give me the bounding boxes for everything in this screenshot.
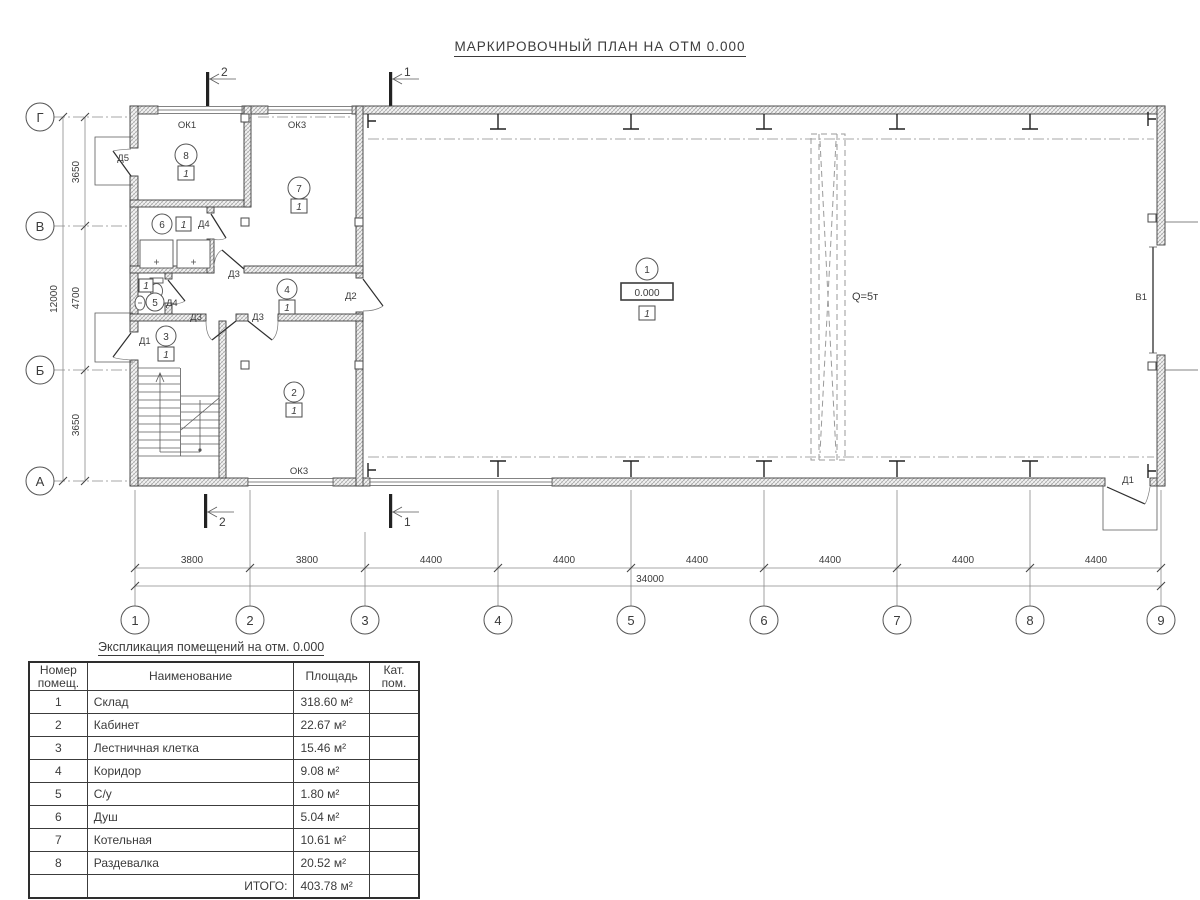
table-header-row: Номер помещ. Наименование Площадь Кат. п…	[29, 662, 419, 691]
axis-grid: 3650 4700 3650 12000 Г В Б А	[26, 103, 1175, 634]
doors: Д5 Д1 Д4 Д4 Д3 Д3 Д3	[113, 149, 1150, 504]
dim-left-1: 4700	[71, 286, 82, 309]
explication-table: Номер помещ. Наименование Площадь Кат. п…	[28, 661, 420, 899]
header-cat: Кат. пом.	[369, 662, 419, 691]
sink-icon	[135, 296, 145, 310]
section-top-1: 1	[404, 65, 411, 79]
section-marks: 2 1 2 1	[204, 65, 419, 529]
staircase	[138, 368, 219, 456]
door-label-d3-b: Д3	[190, 312, 202, 323]
axis-col-7: 7	[893, 613, 900, 628]
svg-text:5: 5	[152, 298, 158, 309]
svg-text:1: 1	[143, 281, 149, 292]
header-name: Наименование	[87, 662, 294, 691]
floor-plan-svg: 3650 4700 3650 12000 Г В Б А	[0, 0, 1200, 640]
svg-text:8: 8	[183, 151, 189, 162]
dim-bottom-3: 4400	[553, 555, 576, 566]
axis-col-9: 9	[1157, 613, 1164, 628]
svg-text:1: 1	[291, 406, 297, 417]
gate-v1	[1149, 245, 1165, 355]
door-label-d3-c: Д3	[252, 312, 264, 323]
explication-title: Экспликация помещений на отм. 0.000	[98, 640, 324, 656]
axis-row-v: В	[36, 219, 45, 234]
header-area: Площадь	[294, 662, 369, 691]
section-bottom-1: 1	[404, 515, 411, 529]
svg-text:1: 1	[284, 303, 290, 314]
table-row: 1 Склад 318.60 м²	[29, 691, 419, 714]
door-label-d3-a: Д3	[228, 269, 240, 280]
table-total-row: ИТОГО: 403.78 м²	[29, 875, 419, 899]
door-label-d5: Д5	[117, 153, 129, 164]
dim-bottom-0: 3800	[181, 555, 204, 566]
section-bottom-2: 2	[219, 515, 226, 529]
room-marker-4: 4 1	[277, 279, 297, 314]
table-row: 3 Лестничная клетка 15.46 м²	[29, 737, 419, 760]
svg-text:6: 6	[159, 220, 165, 231]
svg-text:2: 2	[291, 388, 297, 399]
svg-text:3: 3	[163, 332, 169, 343]
room-marker-2: 2 1	[284, 382, 304, 417]
dim-bottom-4: 4400	[686, 555, 709, 566]
axis-col-5: 5	[627, 613, 634, 628]
window-ok1	[158, 106, 242, 114]
table-row: 5 С/у 1.80 м²	[29, 783, 419, 806]
dim-bottom-total: 34000	[636, 574, 664, 585]
room-marker-6: 6 1	[152, 214, 191, 234]
pilaster-marks	[241, 114, 1156, 370]
porches	[95, 137, 1157, 530]
axis-col-1: 1	[131, 613, 138, 628]
dim-left-2: 3650	[71, 413, 82, 436]
gate-label-v1: В1	[1135, 292, 1147, 303]
room-marker-3: 3 1	[156, 326, 176, 361]
dim-left-total: 12000	[49, 285, 60, 313]
window-label-ok3-bottom: ОК3	[290, 466, 308, 477]
window-hall-bottom	[370, 478, 552, 486]
header-num: Номер помещ.	[29, 662, 87, 691]
shower-stall	[177, 240, 210, 268]
dim-left-0: 3650	[71, 160, 82, 183]
axis-col-2: 2	[246, 613, 253, 628]
svg-text:1: 1	[296, 202, 302, 213]
svg-text:1: 1	[183, 169, 189, 180]
dim-bottom-7: 4400	[1085, 555, 1108, 566]
svg-text:1: 1	[644, 309, 650, 320]
dim-bottom-1: 3800	[296, 555, 319, 566]
axis-row-g: Г	[36, 110, 43, 125]
room-marker-7: 7 1	[288, 177, 310, 213]
door-label-d1-right: Д1	[1122, 475, 1134, 486]
elevation-mark: 0.000	[634, 288, 659, 299]
svg-text:1: 1	[163, 350, 169, 361]
svg-text:1: 1	[644, 265, 650, 276]
door-label-d1-left: Д1	[139, 336, 151, 347]
table-row: 2 Кабинет 22.67 м²	[29, 714, 419, 737]
door-label-d4-b: Д4	[166, 298, 178, 309]
drawing-sheet: МАРКИРОВОЧНЫЙ ПЛАН НА ОТМ 0.000	[0, 0, 1200, 900]
axis-row-a: А	[36, 474, 45, 489]
axis-row-b: Б	[36, 363, 45, 378]
axis-col-8: 8	[1026, 613, 1033, 628]
dim-bottom-5: 4400	[819, 555, 842, 566]
room-marker-8: 8 1	[175, 144, 197, 180]
table-row: 4 Коридор 9.08 м²	[29, 760, 419, 783]
window-ok3-bottom	[248, 478, 333, 486]
column-beams	[368, 112, 1156, 478]
axis-col-6: 6	[760, 613, 767, 628]
hall-elements: Q=5т	[241, 112, 1198, 478]
table-row: 8 Раздевалка 20.52 м²	[29, 852, 419, 875]
svg-text:1: 1	[181, 220, 187, 231]
svg-text:7: 7	[296, 184, 302, 195]
total-label: ИТОГО:	[87, 875, 294, 899]
door-label-d2: Д2	[345, 291, 357, 302]
door-label-d4-a: Д4	[198, 219, 210, 230]
crane-symbol	[811, 134, 845, 460]
total-area: 403.78 м²	[294, 875, 369, 899]
dim-bottom-2: 4400	[420, 555, 443, 566]
section-top-2: 2	[221, 65, 228, 79]
table-row: 7 Котельная 10.61 м²	[29, 829, 419, 852]
window-label-ok3-top: ОК3	[288, 120, 306, 131]
axis-col-4: 4	[494, 613, 501, 628]
svg-text:4: 4	[284, 285, 290, 296]
table-row: 6 Душ 5.04 м²	[29, 806, 419, 829]
window-label-ok1: ОК1	[178, 120, 196, 131]
crane-capacity-label: Q=5т	[852, 291, 878, 303]
shower-stall	[140, 240, 173, 268]
dim-bottom-6: 4400	[952, 555, 975, 566]
axis-col-3: 3	[361, 613, 368, 628]
window-ok3-top	[268, 106, 352, 114]
room-marker-1: 1 0.000 1	[621, 258, 673, 320]
